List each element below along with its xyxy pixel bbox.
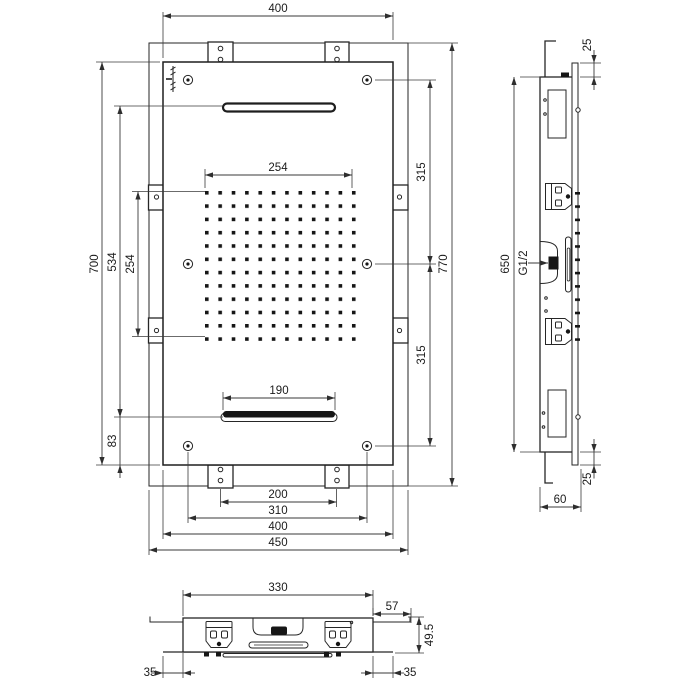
dim-bottom-lip-left: 35 — [144, 667, 157, 679]
dim-front-hole-span-upper: 315 — [416, 162, 428, 181]
dim-front-nozzle-height: 254 — [125, 254, 137, 274]
nozzle-grid — [204, 190, 356, 341]
dim-front-height: 700 — [89, 254, 101, 273]
bottom-right-hook — [373, 617, 410, 623]
side-view — [528, 41, 581, 483]
bottom-under-bar — [223, 654, 332, 658]
dim-side-lip-top: 25 — [582, 39, 594, 52]
bottom-left-hook — [150, 617, 183, 623]
side-bottom-hook — [545, 452, 553, 483]
dim-front-total-height: 770 — [438, 254, 450, 273]
bottom-right-clamp — [325, 621, 353, 647]
dim-side-frame-height: 650 — [500, 254, 512, 273]
dim-front-hole-span-lower: 315 — [416, 345, 428, 364]
dim-front-width-bottom: 400 — [268, 521, 287, 533]
side-lower-clamp — [546, 319, 572, 345]
dim-front-total-width: 450 — [268, 537, 287, 549]
technical-drawing-canvas: 400 700 534 254 83 254 190 315 315 770 2… — [0, 0, 700, 700]
dim-bottom-lip-right: 35 — [404, 667, 417, 679]
side-tab-hole-bottom — [576, 415, 580, 419]
dim-bottom-hook-offset: 57 — [386, 601, 399, 613]
dim-front-slot-span: 534 — [107, 252, 119, 272]
side-nozzle-ticks — [575, 191, 581, 341]
bottom-view — [150, 617, 410, 658]
dim-front-nozzle-width: 254 — [268, 162, 288, 174]
side-tab-hole-top — [576, 108, 580, 112]
upper-waterfall-slot — [223, 104, 335, 112]
dim-side-lip-bottom: 25 — [582, 473, 594, 486]
label-g12-connection: G1/2 — [518, 251, 530, 276]
dim-front-bottom-offset: 83 — [107, 435, 119, 448]
dim-bottom-body-width: 330 — [268, 582, 287, 594]
dim-bottom-body-height: 49.5 — [424, 624, 436, 646]
bottom-feet — [204, 652, 341, 657]
side-upper-clamp — [546, 184, 572, 210]
dim-front-lower-slot: 190 — [269, 385, 288, 397]
bottom-left-clamp — [206, 622, 232, 648]
side-top-hook — [545, 41, 556, 77]
dim-front-bracket-span: 200 — [268, 489, 287, 501]
dim-front-width-top: 400 — [268, 3, 287, 15]
dim-front-hole-span-width: 310 — [268, 505, 287, 517]
side-top-stud — [561, 73, 569, 78]
dim-side-depth: 60 — [554, 494, 567, 506]
front-view — [149, 42, 409, 488]
